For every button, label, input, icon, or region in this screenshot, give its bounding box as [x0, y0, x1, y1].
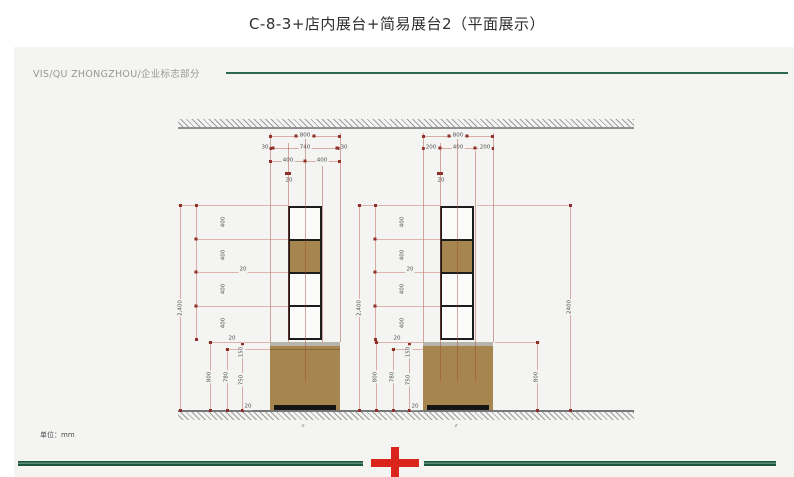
extension-line — [440, 143, 441, 381]
dim-label-section: 400 — [221, 283, 227, 296]
dim-label-section: 400 — [400, 317, 406, 330]
dim-label-total-width: 800 — [299, 133, 312, 139]
dim-label-counter-height: 800 — [373, 371, 379, 384]
extension-line — [288, 143, 289, 342]
manual-page: C-8-3+店内展台+简易展台2（平面展示） VIS/QU ZHONGZHOU/… — [0, 0, 794, 477]
section-header-rule — [226, 72, 788, 74]
dim-label-frame-left: 30 — [261, 145, 270, 151]
dim-label-counter-top: 150 — [406, 346, 412, 359]
extension-line — [194, 239, 288, 240]
dim-label-side-left: 200 — [425, 145, 438, 151]
extension-line — [225, 349, 270, 350]
extension-line — [423, 133, 424, 342]
right-counter-plinth — [427, 405, 489, 410]
dim-label-section: 400 — [221, 249, 227, 262]
dim-label-side-right: 200 — [479, 145, 492, 151]
dim-label-section: 400 — [400, 283, 406, 296]
left-drawing-marker: x — [301, 423, 304, 429]
dim-label-counter-inner: 780 — [224, 371, 230, 384]
unit-note: 单位：mm — [40, 430, 75, 440]
red-cross-icon — [391, 447, 399, 477]
extension-line — [495, 342, 540, 343]
dim-label-counter-inner: 780 — [390, 371, 396, 384]
right-drawing-marker: z — [455, 423, 458, 429]
extension-line — [357, 205, 440, 206]
dim-label-section: 400 — [400, 216, 406, 229]
dim-label-outer-overall-height: 2400 — [567, 299, 573, 315]
dim-label-shelf-thickness: 20 — [239, 267, 248, 273]
dim-tick — [466, 135, 469, 138]
dim-tick — [272, 147, 275, 150]
dim-label-total-width: 800 — [452, 133, 465, 139]
dim-tick — [195, 305, 198, 308]
left-counter-plinth — [274, 405, 336, 410]
extension-line — [373, 306, 440, 307]
extension-line — [493, 133, 494, 342]
ground-hatch — [178, 412, 634, 420]
dim-label-shelf-thickness: 20 — [406, 267, 415, 273]
extension-line — [194, 306, 288, 307]
extension-line — [208, 342, 270, 343]
dim-label-counter-height: 800 — [207, 371, 213, 384]
dim-tick — [474, 147, 477, 150]
extension-line — [373, 239, 440, 240]
ceiling-line — [178, 127, 634, 129]
right-counter-base — [423, 342, 493, 410]
extension-line — [340, 133, 341, 342]
dim-label-board-thickness: 20 — [437, 178, 446, 184]
dim-label-section: 400 — [400, 249, 406, 262]
dim-tick — [374, 238, 377, 241]
dim-label-counter-body: 750 — [406, 374, 412, 387]
dim-label-board-thickness: 20 — [285, 178, 294, 184]
dim-label-counter-body: 750 — [239, 374, 245, 387]
dim-tick — [195, 271, 198, 274]
dim-label-counter-top: 150 — [239, 346, 245, 359]
extension-line — [457, 139, 458, 381]
dim-tick — [374, 305, 377, 308]
dim-label-section: 400 — [221, 216, 227, 229]
right-counter-top-strip — [423, 342, 493, 346]
dim-label-plinth: 20 — [244, 404, 253, 410]
dim-label-tower-width: 400 — [452, 145, 465, 151]
extension-line — [305, 139, 306, 381]
dim-tick — [336, 147, 339, 150]
dim-tick — [295, 135, 298, 138]
dim-label-overall-height: 2,400 — [178, 299, 184, 317]
section-header-label: VIS/QU ZHONGZHOU/企业标志部分 — [33, 66, 200, 80]
dim-label-outer-counter-height: 800 — [534, 371, 540, 384]
extension-line — [477, 205, 572, 206]
dim-label-section: 400 — [221, 317, 227, 330]
extension-line — [270, 133, 271, 342]
footer-green-bar-right — [424, 461, 776, 466]
dim-tick — [313, 135, 316, 138]
page-title: C-8-3+店内展台+简易展台2（平面展示） — [0, 13, 794, 34]
dim-tick — [195, 238, 198, 241]
extension-line — [374, 342, 423, 343]
extension-line — [475, 151, 476, 381]
dim-label-half-right: 400 — [316, 158, 329, 164]
ceiling-hatch — [178, 119, 634, 127]
dim-tick — [374, 271, 377, 274]
dim-label-shelf-thickness: 20 — [393, 336, 402, 342]
extension-line — [322, 166, 323, 342]
footer-green-bar-left — [18, 461, 363, 466]
dim-tick — [448, 135, 451, 138]
dim-label-plinth: 20 — [411, 404, 420, 410]
dim-label-shelf-thickness: 20 — [228, 336, 237, 342]
dim-label-overall-height: 2,400 — [357, 299, 363, 317]
